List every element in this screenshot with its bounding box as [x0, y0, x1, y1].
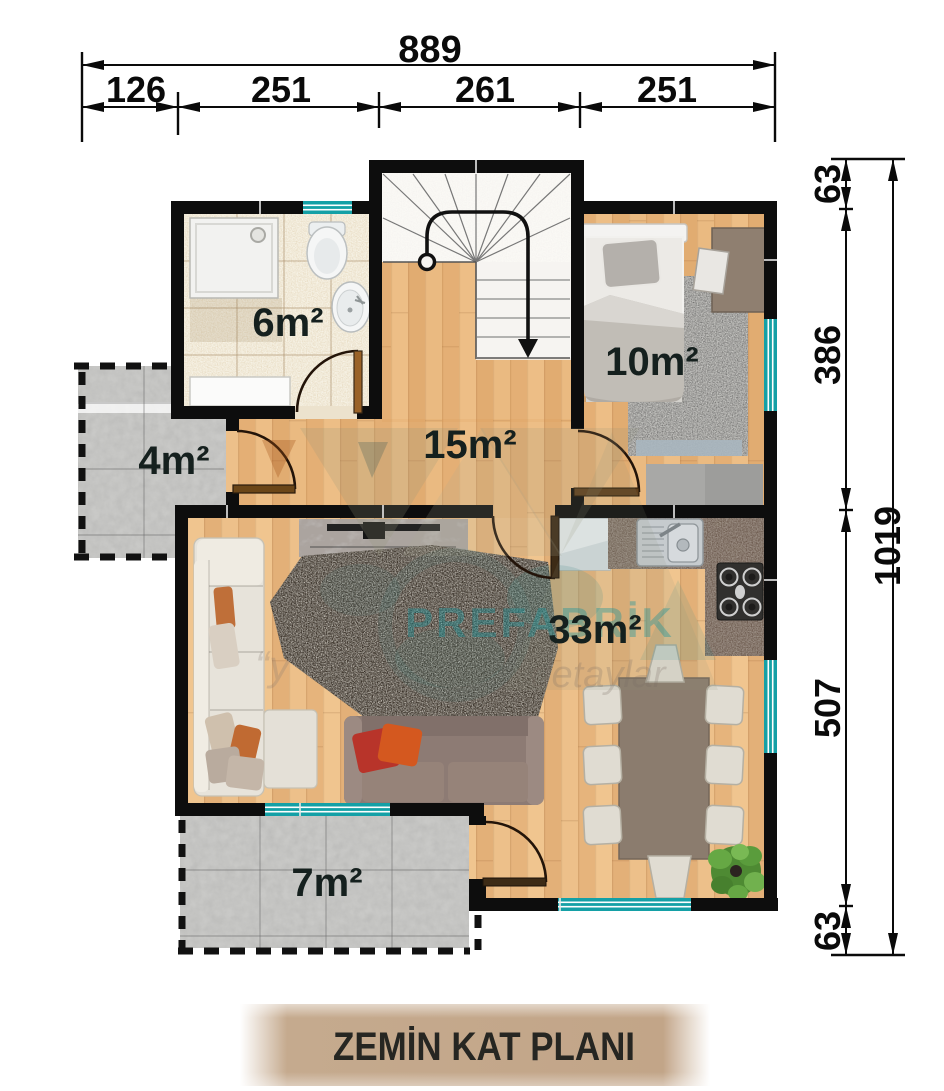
svg-text:15m²: 15m²: [423, 423, 516, 467]
svg-text:261: 261: [455, 69, 515, 110]
svg-text:4m²: 4m²: [138, 439, 209, 483]
svg-text:386: 386: [807, 325, 848, 385]
svg-text:507: 507: [807, 678, 848, 738]
svg-text:detaylar: detaylar: [530, 654, 667, 696]
svg-text:ZEMİN KAT PLANI: ZEMİN KAT PLANI: [333, 1025, 635, 1069]
svg-text:6m²: 6m²: [252, 301, 323, 345]
svg-text:1019: 1019: [867, 506, 908, 586]
svg-text:7m²: 7m²: [291, 861, 362, 905]
svg-text:“y: “y: [255, 642, 293, 689]
svg-text:251: 251: [637, 69, 697, 110]
svg-text:251: 251: [251, 69, 311, 110]
svg-text:63: 63: [807, 164, 848, 204]
svg-text:126: 126: [106, 69, 166, 110]
svg-text:33m²: 33m²: [548, 608, 641, 652]
svg-text:63: 63: [807, 911, 848, 951]
svg-text:889: 889: [398, 29, 461, 71]
svg-text:10m²: 10m²: [605, 340, 698, 384]
